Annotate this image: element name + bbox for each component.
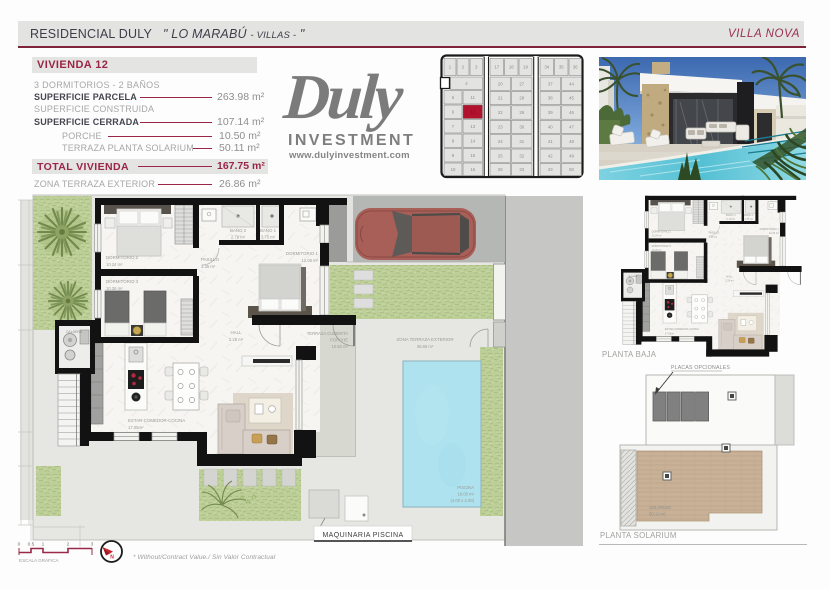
svg-text:43: 43	[548, 167, 553, 172]
svg-text:PASILLO: PASILLO	[201, 257, 220, 262]
svg-text:37: 37	[548, 81, 553, 86]
svg-text:29: 29	[519, 110, 524, 115]
svg-text:BAÑO 2: BAÑO 2	[230, 228, 247, 233]
svg-text:17: 17	[494, 65, 499, 70]
svg-text:36: 36	[573, 65, 578, 70]
svg-text:1: 1	[42, 542, 45, 548]
svg-text:31: 31	[519, 139, 524, 144]
svg-text:39: 39	[548, 110, 553, 115]
svg-text:10.26 m²: 10.26 m²	[106, 286, 123, 291]
svg-text:3.35 m²: 3.35 m²	[201, 264, 216, 269]
svg-text:41: 41	[548, 139, 553, 144]
svg-text:47: 47	[569, 125, 574, 130]
svg-text:14: 14	[470, 138, 475, 143]
svg-text:35: 35	[559, 65, 564, 70]
svg-text:26: 26	[498, 167, 503, 172]
svg-text:19: 19	[523, 65, 528, 70]
svg-text:CALDERA: CALDERA	[66, 330, 83, 334]
svg-text:3: 3	[91, 542, 94, 548]
svg-text:PISCINA: PISCINA	[457, 485, 474, 490]
svg-text:49: 49	[569, 153, 574, 158]
svg-text:17.05m²: 17.05m²	[128, 425, 144, 430]
svg-text:46: 46	[569, 110, 574, 115]
svg-text:27: 27	[519, 81, 524, 86]
svg-text:DORMITORIO 3: DORMITORIO 3	[106, 279, 139, 284]
svg-text:24: 24	[498, 139, 503, 144]
svg-text:BAÑO 1: BAÑO 1	[260, 228, 277, 233]
svg-text:(4.00 x 2.00): (4.00 x 2.00)	[450, 498, 474, 503]
svg-text:20: 20	[498, 81, 503, 86]
svg-text:21: 21	[498, 96, 503, 101]
svg-text:DORMITORIO 2: DORMITORIO 2	[106, 255, 139, 260]
svg-text:16.00 m²: 16.00 m²	[457, 492, 474, 497]
svg-text:ESTAR-COMEDOR-COCINA: ESTAR-COMEDOR-COCINA	[128, 418, 185, 423]
svg-text:10: 10	[451, 167, 456, 172]
svg-text:15: 15	[470, 153, 475, 158]
svg-text:36.86 m²: 36.86 m²	[417, 344, 434, 349]
svg-text:2.79 m²: 2.79 m²	[231, 235, 246, 240]
svg-text:2: 2	[67, 542, 70, 548]
svg-text:34: 34	[544, 65, 549, 70]
svg-text:PLANTA BAJA: PLANTA BAJA	[602, 350, 657, 359]
svg-text:32: 32	[519, 153, 524, 158]
svg-text:12: 12	[470, 109, 475, 114]
svg-text:18: 18	[509, 65, 514, 70]
svg-text:22: 22	[498, 110, 503, 115]
svg-text:TERRAZA CUBIERTA: TERRAZA CUBIERTA	[307, 331, 348, 336]
svg-text:ESCALA GRÁFICA: ESCALA GRÁFICA	[19, 557, 60, 563]
svg-text:44: 44	[569, 81, 574, 86]
svg-text:23: 23	[498, 125, 503, 130]
svg-text:ZONA TERRAZA EXTERIOR: ZONA TERRAZA EXTERIOR	[396, 337, 453, 342]
svg-text:10.24 m²: 10.24 m²	[106, 262, 123, 267]
svg-text:28: 28	[519, 96, 524, 101]
svg-text:2.28 m²: 2.28 m²	[229, 337, 244, 342]
svg-text:MAQUINARIA PISCINA: MAQUINARIA PISCINA	[322, 532, 403, 539]
svg-text:40: 40	[548, 125, 553, 130]
svg-text:16: 16	[470, 167, 475, 172]
svg-text:50.11 m²: 50.11 m²	[649, 512, 666, 517]
svg-text:33: 33	[519, 167, 524, 172]
svg-text:0: 0	[18, 542, 21, 548]
svg-text:12.06 m²: 12.06 m²	[301, 258, 318, 263]
svg-text:13: 13	[470, 124, 475, 129]
svg-text:SOLARIUM: SOLARIUM	[649, 505, 671, 510]
svg-text:30: 30	[519, 125, 524, 130]
svg-text:0.5: 0.5	[28, 542, 35, 548]
svg-text:HALL: HALL	[231, 330, 243, 335]
svg-text:PORCHE: PORCHE	[330, 338, 348, 343]
svg-text:25: 25	[498, 153, 503, 158]
svg-text:N: N	[110, 555, 114, 561]
svg-text:45: 45	[569, 96, 574, 101]
svg-text:50: 50	[569, 167, 574, 172]
svg-text:42: 42	[548, 153, 553, 158]
svg-text:3.75 m²: 3.75 m²	[261, 235, 276, 240]
svg-text:PLANTA SOLARIUM: PLANTA SOLARIUM	[600, 531, 677, 540]
svg-text:DORMITORIO 1: DORMITORIO 1	[286, 251, 319, 256]
svg-text:38: 38	[548, 96, 553, 101]
svg-text:PLACAS OPCIONALES: PLACAS OPCIONALES	[671, 365, 730, 371]
svg-text:48: 48	[569, 139, 574, 144]
svg-text:10.50 m²: 10.50 m²	[331, 344, 348, 349]
svg-text:11: 11	[471, 95, 476, 100]
